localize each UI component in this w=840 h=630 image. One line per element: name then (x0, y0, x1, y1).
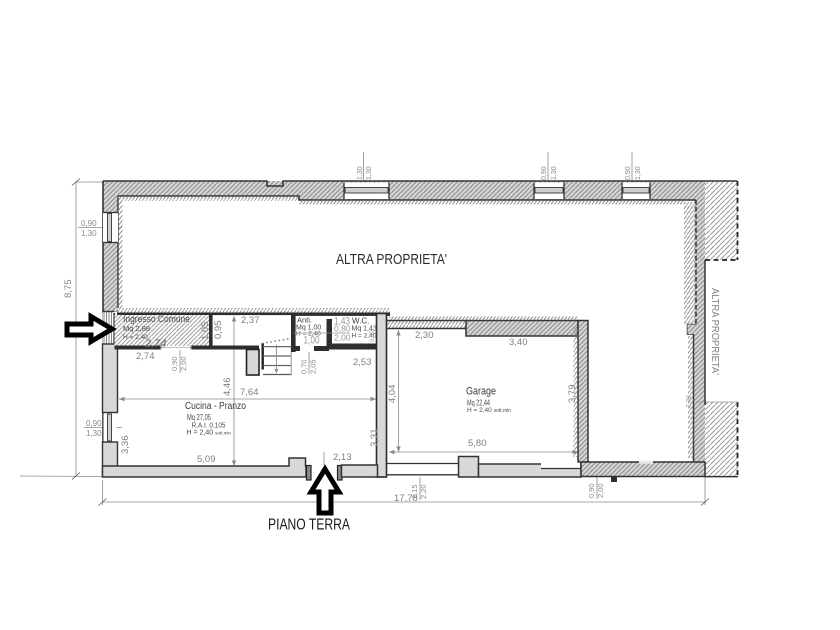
svg-text:0,90: 0,90 (170, 356, 179, 371)
svg-text:2,13: 2,13 (333, 452, 352, 463)
svg-text:1,30: 1,30 (86, 429, 102, 438)
svg-text:Cucina - Pranzo: Cucina - Pranzo (185, 401, 246, 412)
svg-text:Garage: Garage (466, 386, 496, 398)
svg-text:2,37: 2,37 (241, 315, 260, 326)
svg-text:2,05: 2,05 (309, 359, 318, 374)
svg-text:0,90: 0,90 (81, 219, 97, 228)
svg-text:2,74: 2,74 (136, 351, 155, 362)
svg-text:3,36: 3,36 (120, 436, 131, 455)
svg-text:2,00: 2,00 (179, 356, 188, 371)
svg-text:ALTRA PROPRIETA': ALTRA PROPRIETA' (336, 251, 447, 268)
svg-text:0,90: 0,90 (587, 483, 596, 498)
svg-text:17,78: 17,78 (394, 493, 418, 504)
svg-text:0,70: 0,70 (300, 359, 309, 374)
svg-text:5,09: 5,09 (197, 454, 216, 465)
svg-text:2,30: 2,30 (686, 395, 693, 408)
svg-text:H = 2,40 sott.min: H = 2,40 sott.min (467, 407, 511, 414)
svg-text:W.C.: W.C. (352, 317, 369, 326)
svg-text:2,20: 2,20 (419, 484, 428, 499)
svg-text:4,46: 4,46 (222, 378, 233, 397)
svg-text:2,30: 2,30 (415, 330, 434, 341)
svg-text:1,30: 1,30 (357, 166, 364, 180)
svg-text:H = 2,40 sott.min: H = 2,40 sott.min (187, 430, 232, 437)
svg-text:Ingresso Comune: Ingresso Comune (123, 314, 190, 324)
svg-text:0,90: 0,90 (86, 419, 102, 428)
svg-text:0,90: 0,90 (625, 166, 632, 180)
svg-text:8,75: 8,75 (63, 280, 74, 299)
svg-text:Anti.: Anti. (297, 316, 312, 325)
svg-text:4,04: 4,04 (387, 385, 398, 404)
svg-text:2,53: 2,53 (353, 357, 372, 368)
svg-text:1,00: 1,00 (304, 335, 320, 347)
svg-text:Mq 2,88: Mq 2,88 (123, 324, 150, 333)
svg-text:2,74: 2,74 (144, 338, 166, 350)
svg-text:0,90: 0,90 (541, 166, 548, 180)
svg-text:3,31: 3,31 (369, 429, 380, 448)
svg-text:3,79: 3,79 (567, 385, 578, 404)
svg-text:0,60: 0,60 (370, 330, 376, 342)
svg-text:0,95: 0,95 (213, 321, 224, 340)
svg-text:1,30: 1,30 (81, 229, 97, 238)
svg-text:7,64: 7,64 (240, 387, 259, 398)
svg-text:5,80: 5,80 (468, 438, 487, 449)
svg-text:1,30: 1,30 (366, 166, 373, 180)
svg-text:R.A.I. 0,105: R.A.I. 0,105 (192, 421, 226, 430)
svg-text:2,00: 2,00 (334, 333, 351, 343)
svg-text:1,30: 1,30 (635, 166, 642, 180)
svg-text:1,30: 1,30 (551, 166, 558, 180)
svg-text:PIANO TERRA: PIANO TERRA (268, 517, 351, 534)
svg-text:2,00: 2,00 (596, 483, 605, 498)
svg-text:1,05: 1,05 (200, 322, 211, 341)
svg-text:3,40: 3,40 (509, 337, 528, 348)
svg-text:ALTRA PROPRIETA': ALTRA PROPRIETA' (709, 288, 720, 375)
